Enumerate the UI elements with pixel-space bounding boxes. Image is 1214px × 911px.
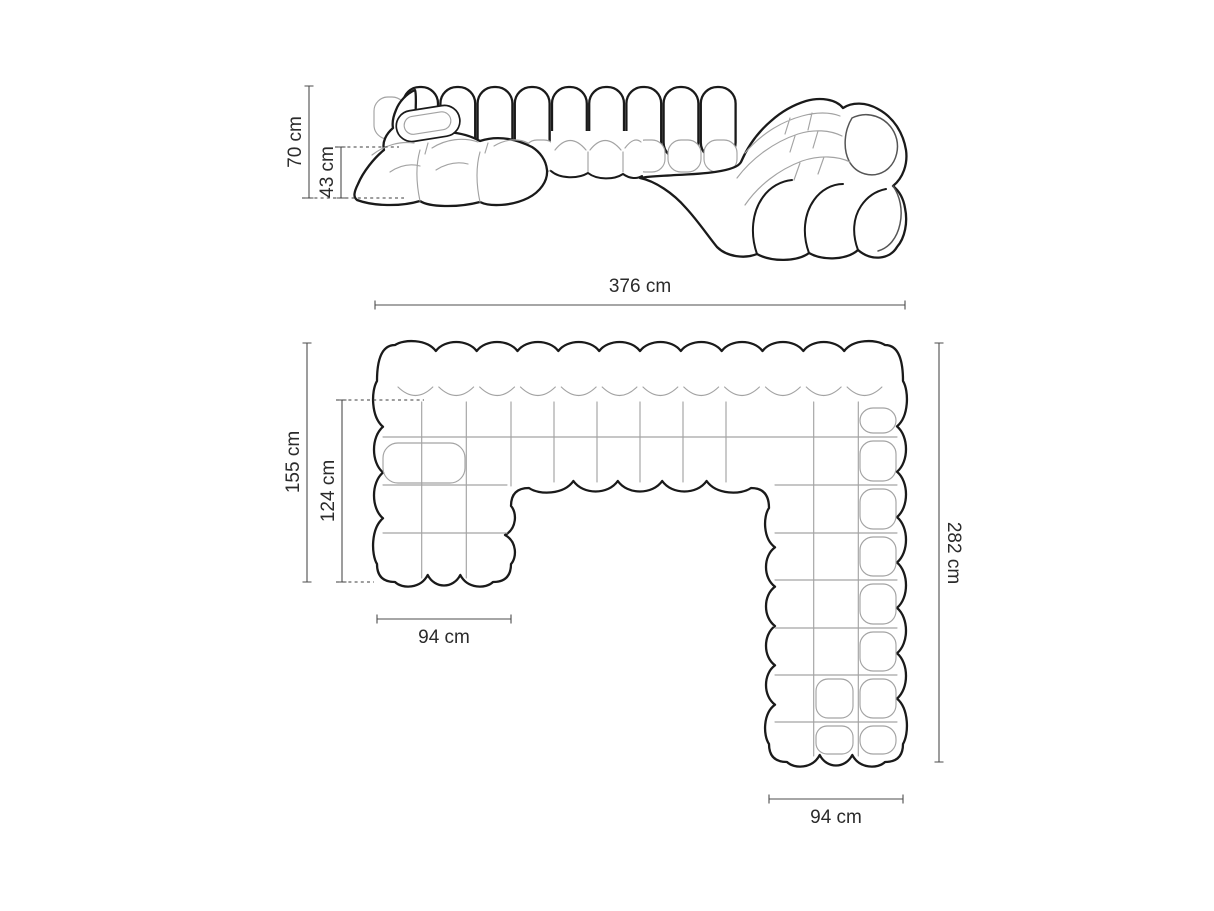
plan-right-depth-label: 282 cm (943, 522, 964, 584)
plan-right-module-width-label: 94 cm (810, 807, 862, 828)
sofa-dimension-diagram: 376 cm 155 cm 124 cm 94 cm 282 cm 94 cm … (0, 0, 1214, 911)
top-plan-drawing (373, 341, 907, 767)
diagram-svg: 376 cm 155 cm 124 cm 94 cm 282 cm 94 cm … (0, 0, 1214, 911)
front-seat-height-label: 43 cm (317, 146, 338, 198)
plan-left-depth-label: 155 cm (283, 431, 304, 493)
front-elevation-drawing (354, 87, 906, 260)
plan-left-inner-depth-label: 124 cm (318, 460, 339, 522)
plan-total-width-label: 376 cm (609, 276, 671, 297)
front-total-height-label: 70 cm (285, 116, 306, 168)
plan-left-module-width-label: 94 cm (418, 627, 470, 648)
front-seat-cushion (668, 140, 701, 172)
